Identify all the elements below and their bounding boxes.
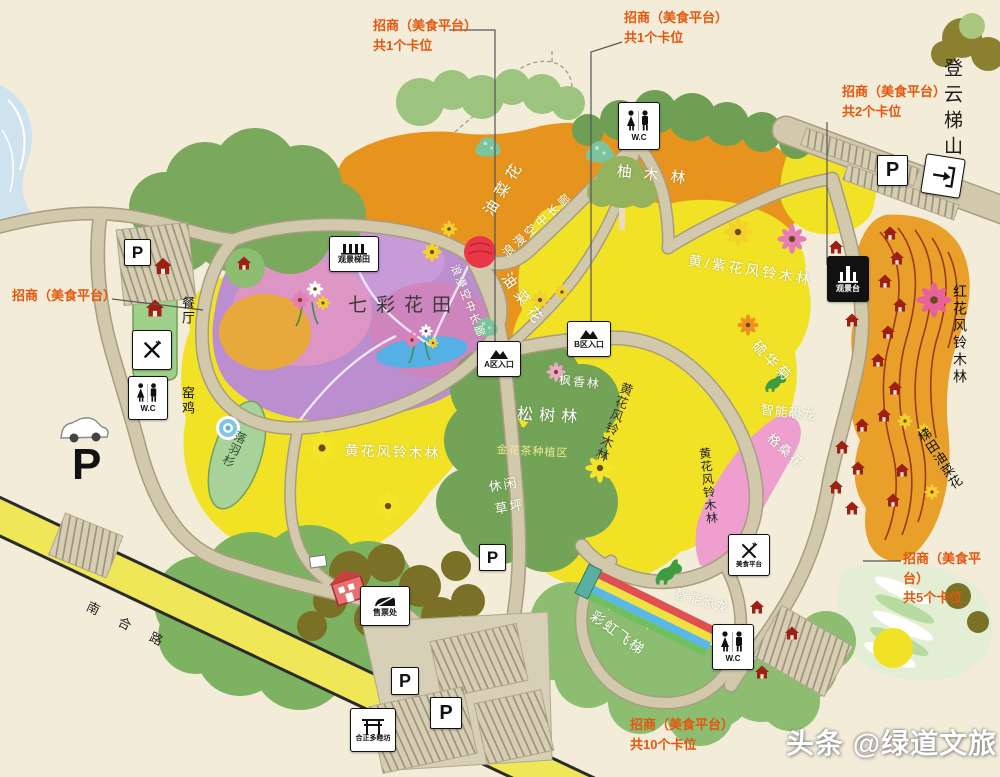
terrace-columns-icon <box>341 243 367 255</box>
gate-sign: 合正多睦坊 <box>350 708 396 752</box>
parking-letter-west: P <box>72 440 101 490</box>
annotation-bottom: 招商（美食平台）共10个卡位 <box>630 715 734 754</box>
ticket-office-sign: 售票处 <box>360 586 410 626</box>
label-honghua-fengling: 红花风铃木林 <box>950 284 970 386</box>
parking-sign-northeast: P <box>877 155 908 186</box>
parking-sign-northwest: P <box>124 239 151 266</box>
small-sign <box>309 555 326 568</box>
label-dengyun-tishan: 登云梯山 <box>938 58 965 162</box>
annotation-top-right: 招商（美食平台）共2个卡位 <box>842 82 946 121</box>
mountain-icon <box>489 348 509 360</box>
viewing-platform-sign: 观景台 <box>827 256 869 302</box>
restroom-figures-icon <box>718 630 748 654</box>
parking-sign-south-2: P <box>430 697 462 729</box>
label-qicai-huatian: 七彩花田 <box>348 290 460 317</box>
park-map: 招商（美食平台）共1个卡位 招商（美食平台）共1个卡位 招商（美食平台）共2个卡… <box>0 0 1000 777</box>
fork-knife-icon <box>739 541 759 561</box>
tower-icon <box>836 264 860 284</box>
trail-entrance-sign <box>920 153 966 199</box>
annotation-right: 招商（美食平台）共5个卡位 <box>903 549 1000 608</box>
torii-gate-icon <box>360 717 386 735</box>
enter-arrow-icon <box>928 161 958 191</box>
entrance-b-sign: B区入口 <box>567 321 611 357</box>
restaurant-sign <box>132 330 172 370</box>
mountain-icon <box>579 328 599 340</box>
parking-sign-center: P <box>479 544 506 571</box>
entrance-a-sign: A区入口 <box>477 341 521 377</box>
annotation-left: 招商（美食平台） <box>12 286 116 306</box>
fork-knife-icon <box>141 339 163 361</box>
label-canting: 餐厅 <box>178 296 197 326</box>
annotation-top-center: 招商（美食平台）共1个卡位 <box>624 8 728 47</box>
annotation-top-left: 招商（美食平台）共1个卡位 <box>373 16 477 55</box>
ticket-gate-icon <box>373 594 397 608</box>
label-songshulin: 松树林 <box>517 400 584 427</box>
parking-sign-south-1: P <box>391 667 419 695</box>
viewing-terrace-sign: 观景梯田 <box>329 236 379 272</box>
restroom-figures-icon <box>624 109 654 133</box>
label-huanghua-fengling-west: 黄花风铃木林 <box>344 440 441 463</box>
watermark: 头条 @绿道文旅 <box>786 722 997 762</box>
restroom-figures-icon <box>134 382 162 404</box>
wc-sign-south: W.C <box>712 624 754 670</box>
label-yaoji: 窑鸡 <box>178 386 197 416</box>
food-platform-sign: 美食平台 <box>728 534 770 576</box>
wc-sign-north: W.C <box>618 102 660 150</box>
wc-sign-west: W.C <box>128 376 168 420</box>
